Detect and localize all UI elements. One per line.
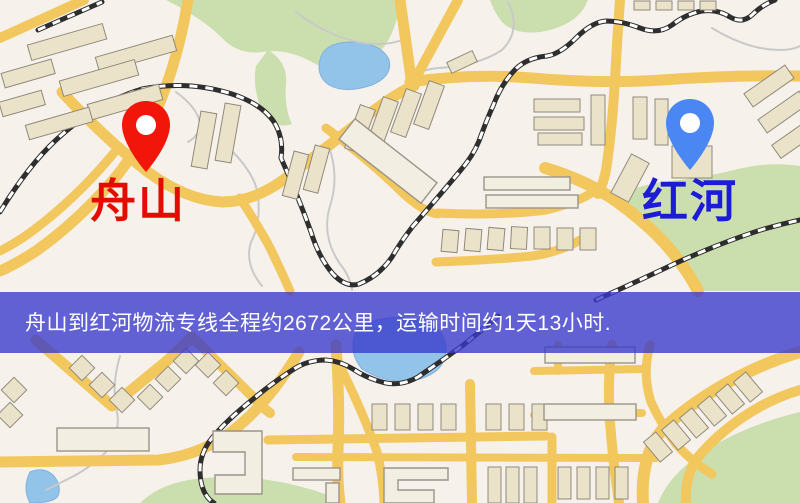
route-banner-text: 舟山到红河物流专线全程约2672公里，运输时间约1天13小时.: [25, 307, 611, 337]
map-canvas[interactable]: 舟山 红河 舟山到红河物流专线全程约2672公里，运输时间约1天13小时.: [0, 0, 800, 503]
destination-pin-shape: [666, 99, 714, 170]
origin-pin[interactable]: [119, 99, 173, 173]
destination-pin[interactable]: [663, 97, 717, 171]
destination-pin-hole: [680, 113, 700, 133]
route-banner: 舟山到红河物流专线全程约2672公里，运输时间约1天13小时.: [0, 292, 800, 353]
map-background: [0, 0, 800, 503]
origin-city-label: 舟山: [90, 178, 186, 224]
destination-city-label: 红河: [642, 178, 738, 224]
origin-pin-shape: [122, 101, 170, 172]
origin-pin-hole: [136, 115, 156, 135]
